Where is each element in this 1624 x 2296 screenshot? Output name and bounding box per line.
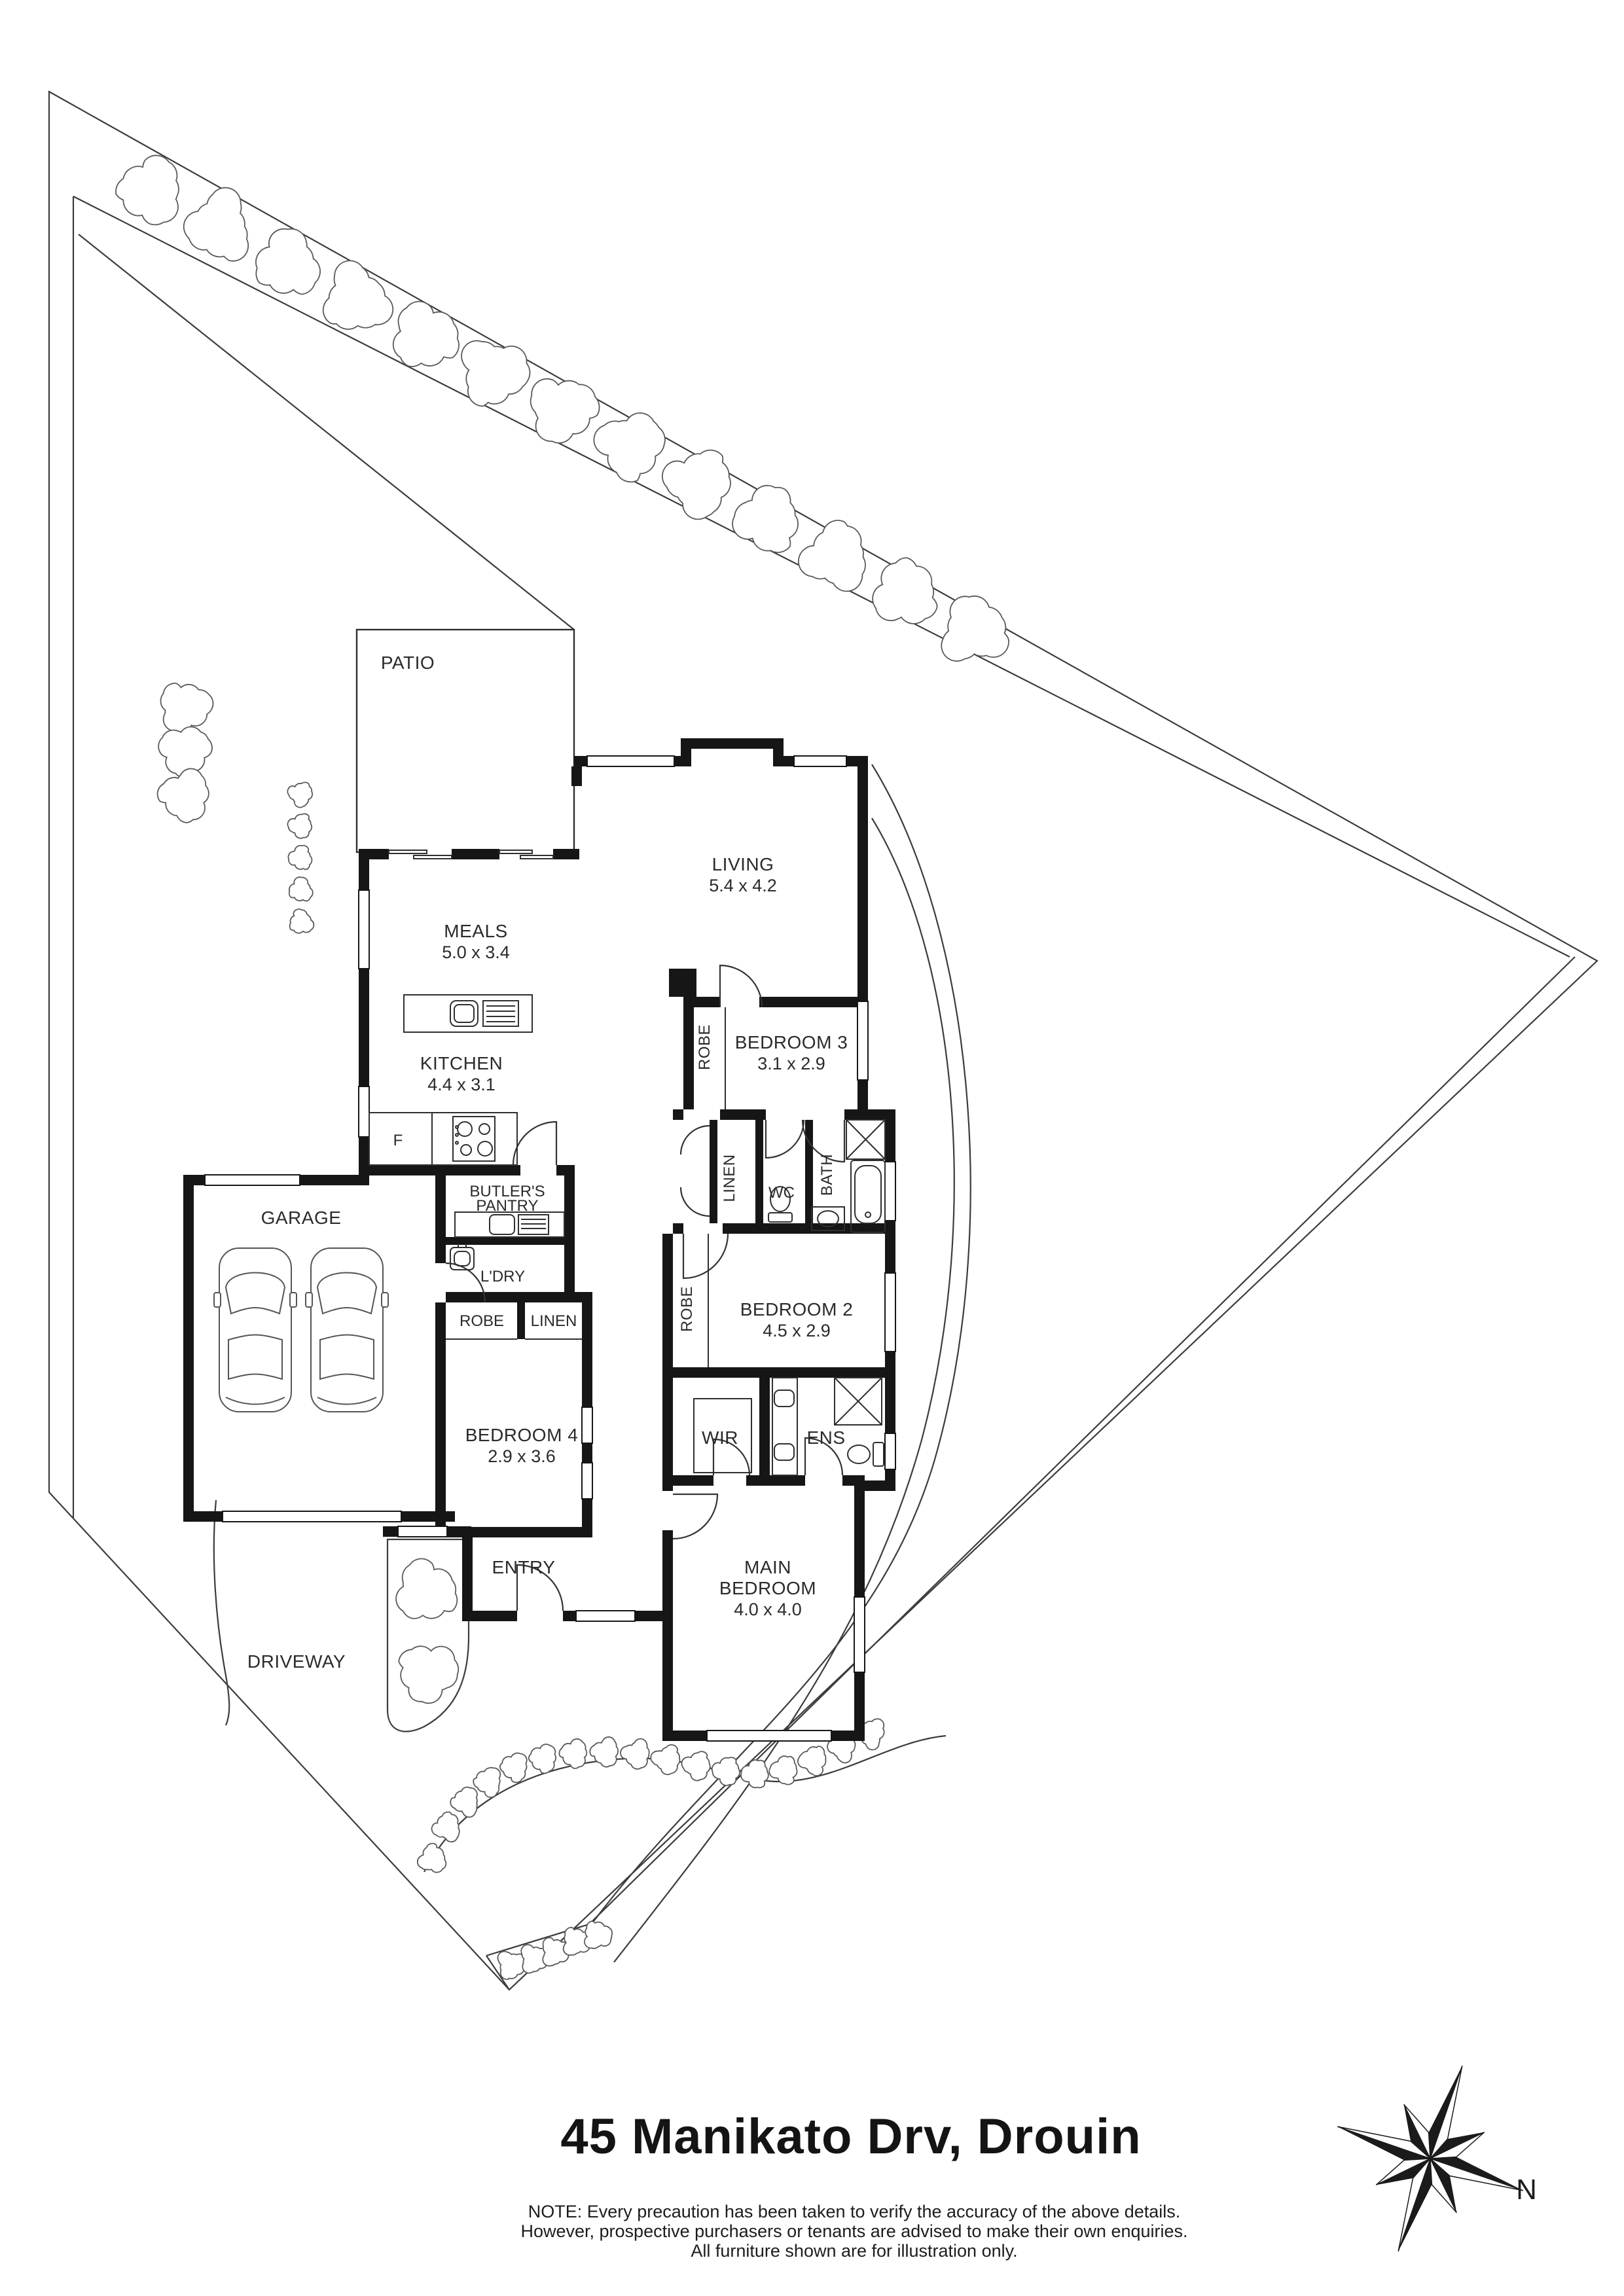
tree-icon [681,1751,710,1780]
tree-icon [941,596,1009,661]
tree-icon [396,1558,457,1618]
garage-label: GARAGE [261,1208,342,1228]
tree-icon [290,909,314,933]
trees [116,155,1009,1979]
meals-dim: 5.0 x 3.4 [442,942,510,962]
living-dim: 5.4 x 4.2 [709,876,777,895]
bed4-linen-label: LINEN [531,1312,577,1330]
kitchen-bench [369,1113,517,1165]
tree-icon [418,1844,446,1873]
note-line1: NOTE: Every precaution has been taken to… [528,2202,1181,2221]
bed4-robe-label: ROBE [460,1312,504,1330]
tree-icon [799,520,865,591]
tree-icon [289,877,313,901]
main-bedroom-label1: MAIN [744,1557,791,1577]
driveway-edge [214,1500,229,1725]
tree-icon [287,814,312,838]
main-bedroom-dim: 4.0 x 4.0 [734,1600,802,1619]
tree-icon [651,1745,679,1774]
tree-icon [590,1737,618,1767]
tree-icon [500,1753,527,1782]
laundry-tub [450,1244,474,1270]
butlers-pantry-label2: PANTRY [476,1197,538,1215]
bath-label: BATH [818,1154,836,1196]
main-bedroom-label2: BEDROOM [719,1578,816,1598]
tree-icon [873,558,937,624]
tree-icon [399,1646,458,1703]
tree-icon [585,1921,612,1948]
bedroom4-dim: 2.9 x 3.6 [488,1446,556,1466]
floorplan-page: { "title": "45 Manikato Drv, Drouin", "n… [0,0,1624,2296]
bedroom2-label: BEDROOM 2 [740,1299,854,1319]
kitchen-dim: 4.4 x 3.1 [427,1075,496,1094]
tree-icon [160,683,213,732]
note-line2: However, prospective purchasers or tenan… [520,2221,1187,2241]
garden-curve-1 [592,764,971,1923]
bedroom3-robe-label: ROBE [696,1024,713,1070]
tree-icon [116,155,179,224]
tree-icon [529,1744,556,1773]
tree-icon [287,782,312,807]
tree-icon [798,1746,826,1776]
car [214,1248,297,1412]
tree-icon [323,260,393,329]
ens-toilet [848,1443,884,1466]
driveway-label: DRIVEWAY [247,1651,346,1672]
meals-label: MEALS [444,921,507,941]
bathtub [851,1160,885,1232]
tree-icon [594,413,665,482]
entry-label: ENTRY [492,1557,556,1577]
linen-hall-label: LINEN [721,1154,738,1202]
tree-icon [769,1756,797,1784]
laundry-label: L'DRY [480,1268,525,1285]
tree-icon [461,341,530,406]
bedroom3-dim: 3.1 x 2.9 [757,1054,825,1073]
tree-icon [732,486,798,552]
rear-path-line1 [486,957,1575,1956]
page-title: 45 Manikato Drv, Drouin [560,2109,1141,2164]
tree-icon [393,302,459,367]
tree-icon [432,1812,460,1842]
tree-icon [621,1739,649,1769]
tree-icon [741,1760,768,1787]
tree-icon [450,1787,477,1817]
tree-icon [662,450,731,520]
tree-icon [559,1739,586,1768]
floor-plan-svg: PATIO LIVING 5.4 x 4.2 MEALS 5.0 x 3.4 B… [0,0,1624,2296]
tree-icon [184,188,248,261]
garage-cars [214,1248,388,1412]
compass-rose-icon [1337,2066,1523,2251]
bedroom3-label: BEDROOM 3 [735,1032,848,1052]
disclaimer-note: NOTE: Every precaution has been taken to… [520,2202,1187,2261]
compass-north-label: N [1516,2174,1537,2206]
fridge-label: F [393,1132,403,1149]
tree-icon [288,846,312,869]
tree-icon [158,768,209,823]
bath-shower [846,1120,885,1159]
front-garden-curve [424,1736,946,1872]
pantry-bench [455,1212,564,1237]
tree-icon [531,379,600,443]
kitchen-label: KITCHEN [420,1053,503,1073]
patio-label: PATIO [381,653,435,673]
bedroom2-dim: 4.5 x 2.9 [763,1321,831,1340]
car [306,1248,388,1412]
garage-door [223,1511,401,1522]
ens-label: ENS [806,1427,845,1448]
wir-label: WIR [702,1427,738,1448]
wc-label: WC [768,1184,795,1202]
ens-shower [835,1378,882,1425]
kitchen-island [404,995,532,1032]
ens-vanity [772,1378,797,1475]
living-label: LIVING [712,854,774,874]
note-line3: All furniture shown are for illustration… [691,2241,1017,2261]
bedroom2-robe-label: ROBE [678,1286,696,1332]
setback-line [79,234,574,630]
bedroom4-label: BEDROOM 4 [465,1425,579,1445]
